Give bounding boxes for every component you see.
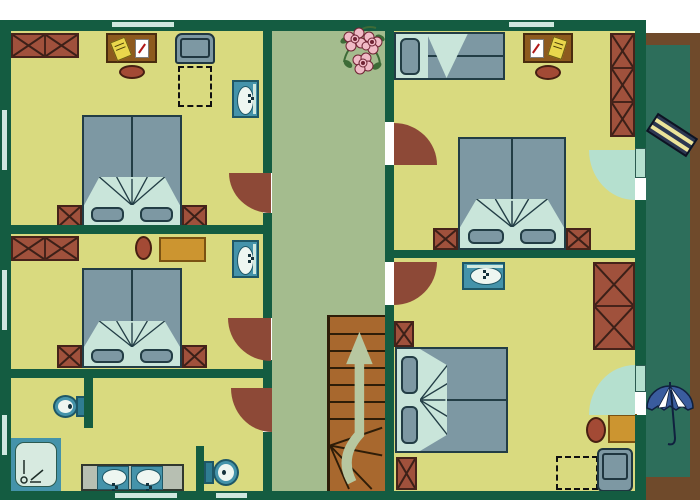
hall-wall-left-b — [263, 213, 272, 318]
desk-chair — [119, 65, 145, 79]
wall-right-a — [635, 20, 646, 148]
faucet-icon — [248, 94, 251, 97]
desk — [523, 33, 573, 63]
wall-right-b — [635, 200, 646, 365]
washbasin — [462, 262, 505, 290]
nightstand — [182, 345, 207, 368]
wall-between-right-bedrooms — [394, 250, 635, 258]
toilet-flush-icon — [68, 404, 72, 409]
x-cell — [612, 67, 633, 101]
pillow — [401, 356, 418, 394]
flower-bouquet-icon — [336, 22, 388, 82]
wardrobe — [11, 236, 79, 261]
pillow — [520, 229, 556, 244]
window — [216, 493, 247, 498]
wall-between-left-bedrooms — [11, 225, 263, 234]
balcony-door-leaf-top — [635, 148, 646, 178]
hall-wall-left-d — [263, 432, 272, 491]
toilet-flush-icon — [222, 470, 226, 475]
wall-bottom — [0, 491, 646, 500]
x-cell — [612, 101, 633, 135]
table — [159, 237, 206, 262]
hall-wall-left-a — [263, 31, 272, 173]
x-cell — [184, 347, 205, 366]
hall-wall-left-c — [263, 360, 272, 388]
hall-wall-right-b — [385, 165, 394, 262]
hall-wall-right-c — [385, 305, 394, 491]
nightstand — [433, 228, 458, 250]
luggage-area — [556, 456, 598, 490]
x-cell — [44, 238, 77, 259]
nightstand — [57, 345, 82, 368]
x-cell — [568, 230, 589, 248]
up-arrow — [330, 317, 385, 491]
wardrobe — [593, 262, 635, 350]
window — [115, 493, 177, 498]
double-bed — [395, 347, 508, 453]
x-cell — [13, 238, 44, 259]
left-rooms-floor — [11, 31, 263, 491]
window — [509, 22, 554, 27]
pillow — [91, 349, 124, 363]
x-cell — [595, 264, 633, 305]
shower-head-icon — [11, 438, 61, 491]
armchair — [175, 33, 215, 64]
x-cell — [59, 207, 80, 226]
duvet — [445, 349, 506, 451]
toilet — [213, 459, 239, 486]
balcony-edge-bottom — [646, 477, 700, 500]
toilet — [53, 395, 78, 418]
pillow — [140, 349, 173, 363]
pillow — [401, 406, 418, 444]
notepad-icon — [110, 37, 132, 62]
double-bed — [82, 268, 182, 368]
faucet-icon — [248, 254, 251, 257]
x-cell — [612, 35, 633, 67]
pen-icon — [532, 43, 540, 53]
vanity-sink — [131, 466, 163, 490]
x-cell — [59, 347, 80, 366]
bathroom-partition-a — [84, 378, 93, 428]
chair — [586, 417, 606, 443]
basin — [237, 246, 254, 275]
single-bed — [394, 32, 505, 80]
pillow — [140, 207, 173, 222]
bed-fold — [84, 321, 180, 347]
x-cell — [435, 230, 456, 248]
staircase — [327, 315, 385, 491]
bathroom-partition-b — [196, 446, 204, 491]
desk-chair — [535, 65, 561, 80]
pillow — [468, 229, 504, 244]
notepad-icon — [547, 36, 567, 60]
window — [2, 270, 7, 330]
double-bed — [82, 115, 182, 228]
nightstand — [396, 457, 417, 490]
bed-fold — [420, 349, 447, 451]
sink-shelf — [253, 244, 256, 274]
washbasin — [232, 240, 259, 278]
x-cell — [184, 207, 205, 226]
side-table — [608, 414, 637, 443]
sink-shelf — [253, 84, 256, 114]
x-cell — [396, 323, 412, 345]
shower — [11, 438, 61, 491]
nightstand — [566, 228, 591, 250]
armchair — [597, 448, 633, 492]
wall-bathroom-top — [11, 369, 263, 378]
window — [112, 22, 174, 27]
paper-icon — [530, 39, 544, 58]
window — [2, 415, 7, 455]
bed-fold — [84, 177, 180, 205]
paper-icon — [135, 39, 149, 58]
x-cell — [595, 305, 633, 348]
bed-fold — [460, 199, 564, 227]
basin — [237, 86, 254, 115]
nightstand — [394, 321, 414, 347]
x-cell — [398, 459, 415, 488]
x-cell — [13, 35, 44, 56]
pillow — [91, 207, 124, 222]
faucet-icon — [146, 483, 149, 486]
desk — [106, 33, 157, 63]
floor-plan — [0, 0, 700, 500]
washbasin — [232, 80, 259, 118]
x-cell — [44, 35, 77, 56]
parasol-icon — [644, 380, 696, 468]
sink-shelf — [467, 265, 503, 268]
chair — [135, 236, 152, 260]
pillow — [400, 38, 420, 75]
faucet-icon — [112, 483, 115, 486]
double-bed — [458, 137, 566, 250]
wardrobe — [610, 33, 635, 137]
vanity-sink — [97, 466, 129, 490]
basin — [470, 267, 502, 285]
faucet-icon — [483, 270, 486, 273]
wardrobe — [11, 33, 79, 58]
luggage-area — [178, 66, 212, 107]
window — [2, 110, 7, 170]
pen-icon — [138, 43, 146, 53]
